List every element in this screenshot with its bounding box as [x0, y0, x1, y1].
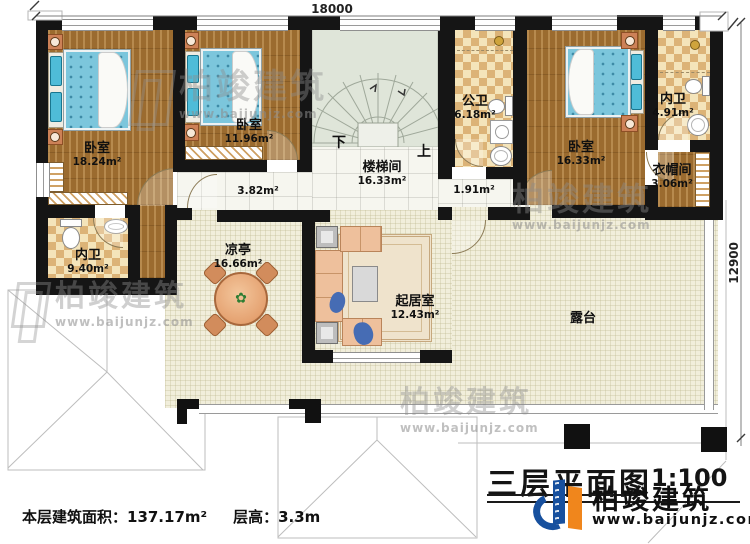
logo-bar-blue — [553, 479, 565, 524]
dim-right: 12900 — [727, 242, 741, 284]
dim-top: 18000 — [302, 2, 362, 16]
logo-building-icon — [533, 478, 589, 536]
floor-plan-canvas: 18000 12900 卧室 18.24m² 内卫 9.40m² 卧室 11.9… — [0, 0, 750, 544]
logo-bar-orange — [568, 486, 582, 530]
logo-url-text: www.baijunjz.com — [592, 512, 750, 528]
floor-notes: 本层建筑面积：137.17m²层高：3.3m — [22, 506, 346, 527]
floor-area-note: 本层建筑面积：137.17m² — [22, 508, 207, 526]
floor-height-note: 层高：3.3m — [233, 508, 320, 526]
